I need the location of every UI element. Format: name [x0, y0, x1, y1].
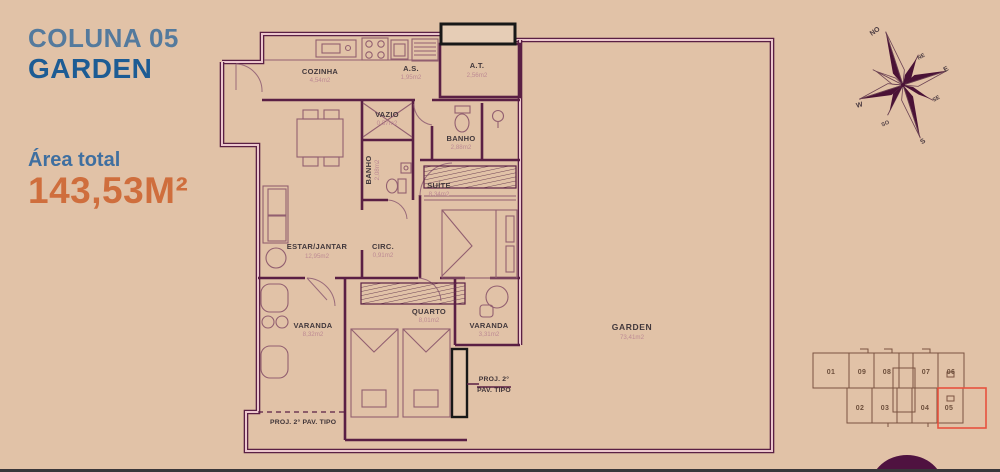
keyplan: 01 09 08 07 06 02 03 04 05 — [813, 349, 986, 428]
compass-label-so: SO — [881, 119, 891, 128]
room-area-quarto: 8,01m2 — [419, 317, 440, 324]
side-table — [266, 248, 286, 268]
compass-label-s: S — [919, 137, 927, 146]
room-area-banho-1: 2,08m2 — [374, 159, 381, 180]
room-area-garden: 73,41m2 — [620, 334, 645, 341]
keyplan-unit-01: 01 — [827, 369, 836, 376]
keyplan-unit-03: 03 — [881, 405, 890, 412]
room-label-cozinha: COZINHA — [302, 67, 339, 76]
toilet — [387, 179, 398, 193]
room-area-banho-2: 2,88m2 — [451, 144, 472, 151]
compass-label-ne: NE — [917, 52, 927, 61]
keyplan-unit-04: 04 — [921, 405, 930, 412]
bed-1 — [351, 329, 398, 417]
keyplan-unit-08: 08 — [883, 369, 892, 376]
proj-side-label-1: PROJ. 2° — [479, 375, 509, 383]
room-area-estar: 12,95m2 — [305, 253, 330, 260]
bed-2 — [403, 329, 450, 417]
toilet-2 — [455, 114, 469, 132]
keyplan-unit-06: 06 — [947, 369, 956, 376]
floorplan-drawing: COZINHA 4,54m2 A.S. 1,95m2 A.T. 2,56m2 V… — [0, 0, 1000, 472]
room-labels: COZINHA 4,54m2 A.S. 1,95m2 A.T. 2,56m2 V… — [287, 61, 652, 341]
proj-bottom-label: PROJ. 2° PAV. TIPO — [270, 418, 336, 426]
room-label-suite: SUÍTE — [427, 181, 451, 190]
keyplan-unit-07: 07 — [922, 369, 931, 376]
quarto-wardrobe — [361, 283, 465, 304]
room-label-estar: ESTAR/JANTAR — [287, 242, 348, 251]
room-area-vazio: 0,57m2 — [377, 120, 398, 127]
compass-label-no: NO — [869, 26, 882, 38]
room-label-garden: GARDEN — [612, 322, 652, 332]
annotations: PROJ. 2° PAV. TIPO PROJ. 2° PAV. TIPO — [270, 375, 511, 426]
washbasin — [493, 111, 504, 122]
room-label-circ: CIRC. — [372, 242, 394, 251]
furniture — [261, 38, 517, 417]
compass-label-se: SE — [932, 95, 942, 104]
room-label-varanda-1: VARANDA — [293, 321, 332, 330]
room-area-cozinha: 4,54m2 — [310, 77, 331, 84]
balcony-chair-2 — [261, 346, 288, 378]
room-label-as: A.S. — [403, 64, 419, 73]
room-area-varanda-2: 3,31m2 — [479, 331, 500, 338]
room-at-outline — [440, 44, 520, 97]
dining-table — [297, 119, 343, 157]
projection-box — [452, 349, 467, 417]
room-area-as: 1,95m2 — [401, 74, 422, 81]
compass-label-w: W — [856, 101, 865, 110]
brochure-page: COLUNA 05 GARDEN Área total 143,53M² — [0, 0, 1000, 472]
floorplan: COZINHA 4,54m2 A.S. 1,95m2 A.T. 2,56m2 V… — [222, 24, 772, 451]
room-area-suite: 8,34m2 — [429, 191, 450, 198]
room-label-vazio: VAZIO — [375, 110, 399, 119]
washer — [412, 39, 438, 61]
room-label-varanda-2: VARANDA — [469, 321, 508, 330]
keyplan-unit-09: 09 — [858, 369, 867, 376]
room-label-at: A.T. — [470, 61, 485, 70]
keyplan-unit-05: 05 — [945, 405, 954, 412]
proj-side-label-2: PAV. TIPO — [477, 387, 511, 394]
room-label-banho-2: BANHO — [447, 134, 476, 143]
room-area-circ: 0,91m2 — [373, 252, 394, 259]
room-area-varanda-1: 8,32m2 — [303, 331, 324, 338]
keyplan-unit-02: 02 — [856, 405, 865, 412]
room-area-at: 2,56m2 — [467, 72, 488, 79]
compass-rose: NO NE E SE S SO W — [842, 18, 964, 153]
room-label-quarto: QUARTO — [412, 307, 446, 316]
room-label-banho-1: BANHO — [364, 156, 373, 185]
balcony-chair-1 — [261, 284, 288, 312]
shaft-box — [441, 24, 515, 44]
